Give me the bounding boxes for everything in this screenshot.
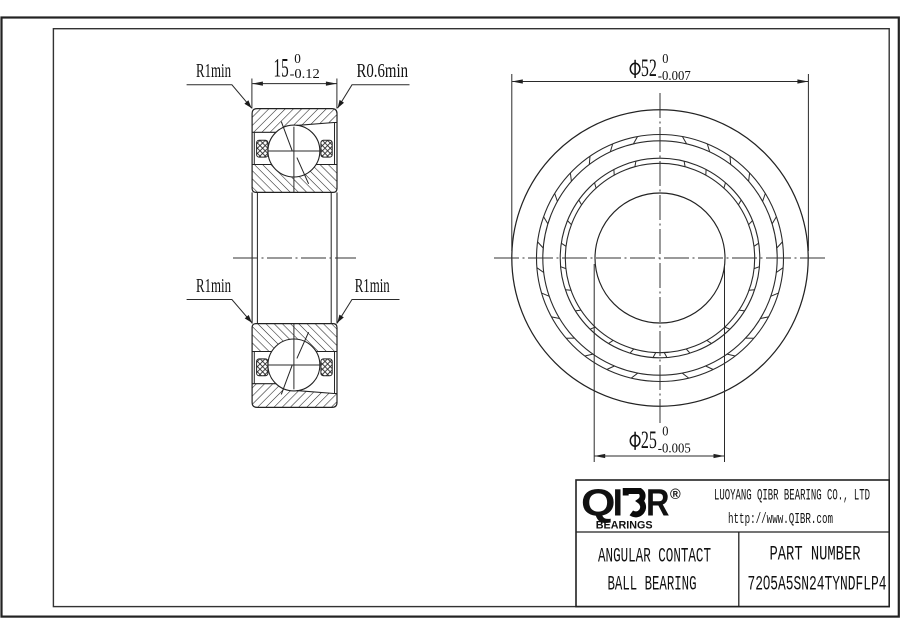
svg-text:-0.005: -0.005 [658,440,691,455]
svg-text:®: ® [670,487,681,503]
svg-text:R1min: R1min [355,275,390,297]
svg-text:0: 0 [294,51,301,66]
svg-text:R: R [646,483,670,525]
svg-text:0: 0 [662,51,668,66]
svg-text:-0.12: -0.12 [290,66,320,81]
svg-text:Q: Q [581,483,616,525]
svg-text:R1min: R1min [196,275,231,297]
svg-text:0: 0 [662,423,668,438]
svg-text:ANGULAR CONTACT: ANGULAR CONTACT [598,546,711,569]
svg-text:-0.007: -0.007 [658,68,691,83]
svg-text:BALL BEARING: BALL BEARING [608,574,697,597]
svg-text:I: I [613,483,624,525]
svg-text:R0.6min: R0.6min [357,60,409,82]
svg-text:R1min: R1min [196,60,231,82]
svg-text:52: 52 [641,55,657,82]
svg-text:7205A5SN24TYNDFLP4: 7205A5SN24TYNDFLP4 [748,572,887,597]
svg-text:http://www.QIBR.com: http://www.QIBR.com [728,511,833,528]
svg-text:15: 15 [274,54,289,83]
svg-text:PART NUMBER: PART NUMBER [770,544,861,567]
svg-text:BEARINGS: BEARINGS [596,520,653,532]
svg-text:LUOYANG QIBR BEARING CO., LTD: LUOYANG QIBR BEARING CO., LTD [714,487,870,505]
svg-text:25: 25 [641,427,657,454]
